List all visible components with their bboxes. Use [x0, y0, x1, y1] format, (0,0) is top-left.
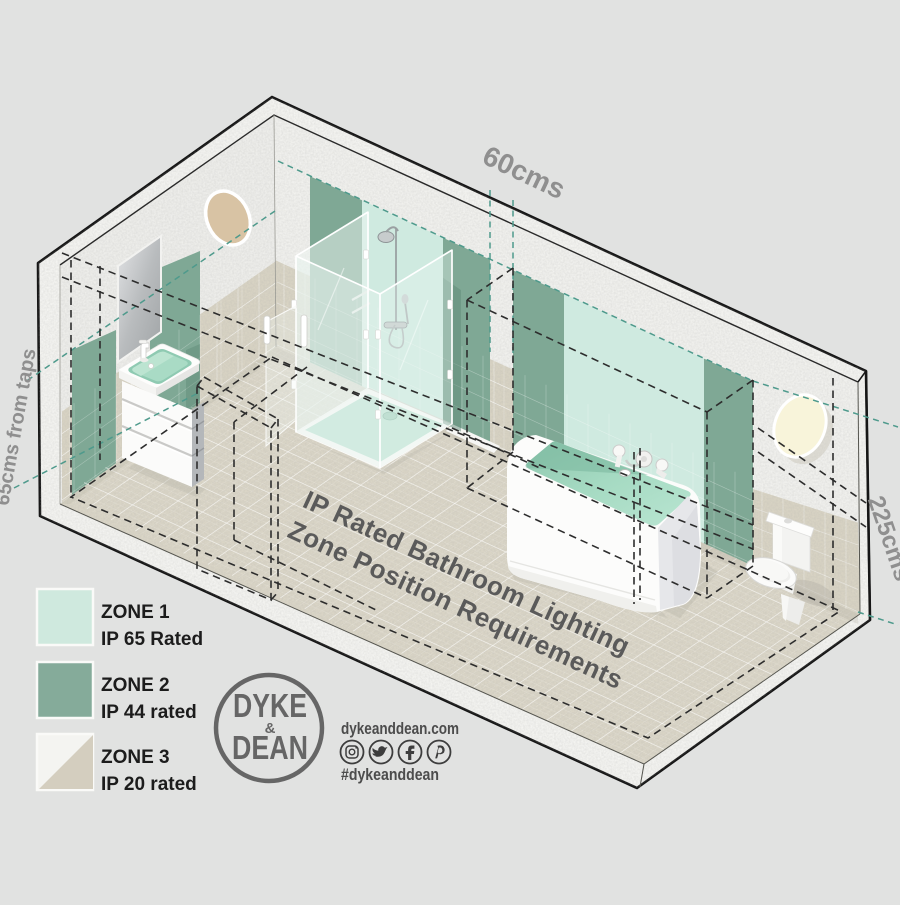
svg-text:ZONE 3: ZONE 3	[101, 747, 170, 768]
svg-text:#dykeanddean: #dykeanddean	[341, 765, 439, 784]
svg-text:ZONE 2: ZONE 2	[101, 675, 170, 696]
svg-text:DYKE: DYKE	[233, 687, 307, 724]
svg-text:dykeanddean.com: dykeanddean.com	[341, 719, 459, 738]
svg-text:IP 65 Rated: IP 65 Rated	[101, 629, 203, 650]
svg-text:IP 20 rated: IP 20 rated	[101, 774, 197, 795]
svg-text:ZONE 1: ZONE 1	[101, 602, 170, 623]
svg-text:DEAN: DEAN	[232, 729, 308, 766]
svg-text:IP 44 rated: IP 44 rated	[101, 702, 197, 723]
